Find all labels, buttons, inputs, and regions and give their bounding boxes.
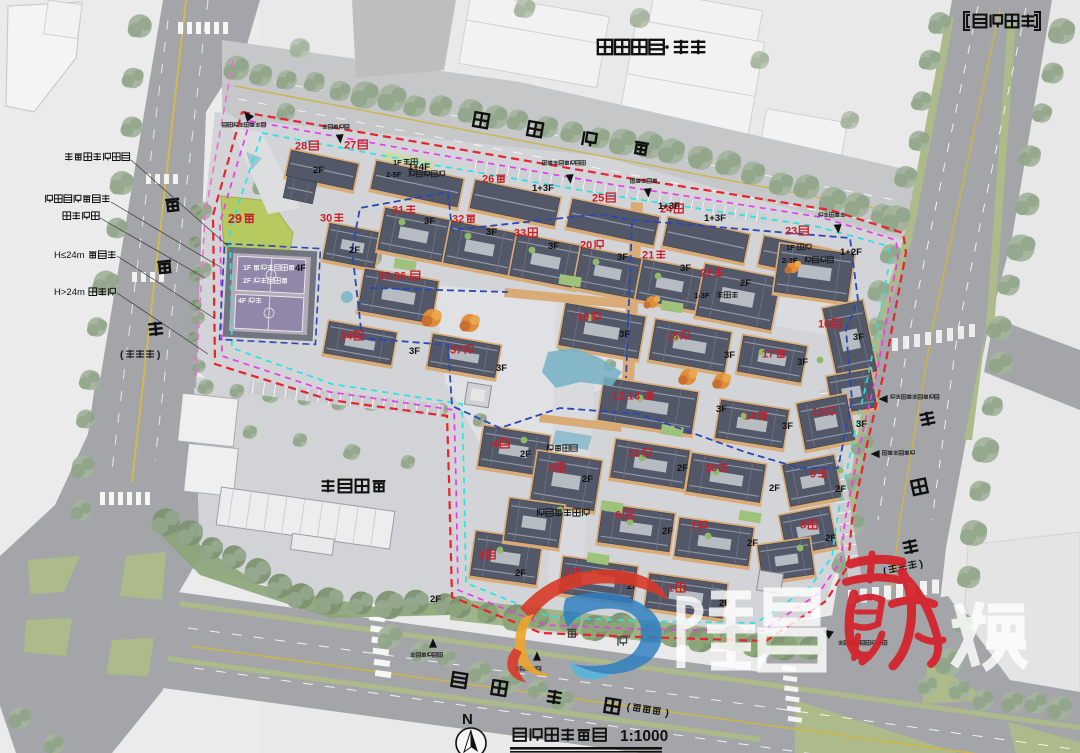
svg-text:1: 1 — [668, 582, 674, 594]
svg-text:14: 14 — [744, 410, 757, 422]
svg-text:29: 29 — [228, 212, 242, 226]
svg-text:23: 23 — [785, 225, 797, 237]
svg-text:26: 26 — [482, 173, 494, 185]
svg-text:2F: 2F — [430, 594, 441, 605]
svg-text:25: 25 — [592, 192, 604, 204]
svg-text:22: 22 — [700, 267, 712, 279]
svg-text:2F: 2F — [520, 449, 531, 460]
svg-text:H>24m: H>24m — [54, 287, 85, 298]
svg-text:10: 10 — [705, 462, 717, 474]
svg-text:3F: 3F — [424, 216, 435, 227]
svg-text:1F: 1F — [243, 265, 252, 272]
svg-text:11: 11 — [628, 447, 640, 459]
svg-text:2F: 2F — [677, 463, 688, 474]
svg-text:1F: 1F — [786, 243, 795, 252]
svg-text:31: 31 — [392, 204, 404, 216]
svg-text:2F: 2F — [825, 533, 836, 544]
svg-text:37: 37 — [450, 344, 462, 356]
svg-text:2-3F: 2-3F — [782, 256, 798, 265]
svg-text:3F: 3F — [496, 363, 507, 374]
svg-text:1+3F: 1+3F — [658, 201, 680, 212]
svg-text:6: 6 — [615, 509, 621, 521]
svg-text:5: 5 — [548, 462, 554, 474]
svg-text:1+3F: 1+3F — [532, 183, 554, 194]
svg-text:2F: 2F — [582, 474, 593, 485]
svg-text:33: 33 — [514, 227, 526, 239]
svg-text:3F: 3F — [782, 421, 793, 432]
svg-text:27: 27 — [344, 139, 356, 151]
svg-text:19: 19 — [577, 311, 589, 323]
svg-text:1-3F: 1-3F — [694, 291, 710, 300]
svg-text:N: N — [462, 711, 473, 728]
svg-text:2F: 2F — [243, 278, 252, 285]
svg-text:12-13: 12-13 — [612, 390, 640, 402]
svg-text:2F: 2F — [740, 278, 751, 289]
svg-text:3F: 3F — [486, 227, 497, 238]
svg-text:32: 32 — [452, 213, 464, 225]
svg-text:3F: 3F — [797, 357, 808, 368]
svg-text:3F: 3F — [680, 263, 691, 274]
svg-text:17: 17 — [762, 348, 774, 360]
svg-text:18: 18 — [666, 330, 678, 342]
svg-text:9: 9 — [810, 468, 816, 480]
svg-text:16: 16 — [818, 318, 830, 330]
svg-text:2F: 2F — [835, 484, 846, 495]
svg-text:30: 30 — [320, 212, 332, 224]
svg-text:34: 34 — [340, 330, 353, 342]
svg-text:2-5F: 2-5F — [386, 170, 402, 179]
svg-text:3F: 3F — [853, 332, 864, 343]
svg-text:2F: 2F — [515, 568, 526, 579]
svg-text:1F: 1F — [393, 158, 402, 167]
svg-text:2F: 2F — [662, 526, 673, 537]
svg-text:H≤24m: H≤24m — [54, 250, 85, 261]
svg-text:28: 28 — [295, 140, 307, 152]
svg-text:4F: 4F — [295, 263, 306, 274]
svg-text:1+2F: 1+2F — [840, 247, 862, 258]
svg-text:3F: 3F — [619, 329, 630, 340]
svg-text:8: 8 — [800, 519, 806, 531]
svg-text:3F: 3F — [716, 404, 727, 415]
svg-text:3F: 3F — [856, 419, 867, 430]
svg-text:2F: 2F — [747, 538, 758, 549]
svg-text:3: 3 — [478, 549, 484, 561]
svg-text:4F: 4F — [238, 298, 247, 305]
svg-text:7: 7 — [690, 520, 696, 532]
svg-text:4: 4 — [492, 438, 499, 450]
svg-text:): ) — [157, 350, 160, 361]
svg-text:1+3F: 1+3F — [704, 213, 726, 224]
svg-text:3F: 3F — [409, 346, 420, 357]
svg-text:2F: 2F — [313, 165, 324, 176]
svg-text:3F: 3F — [724, 350, 735, 361]
svg-text:20: 20 — [580, 239, 592, 251]
svg-text:35-36: 35-36 — [378, 270, 406, 282]
svg-text:2F: 2F — [769, 483, 780, 494]
svg-text:3F: 3F — [617, 252, 628, 263]
svg-text:15: 15 — [812, 406, 824, 418]
svg-text:3F: 3F — [548, 241, 559, 252]
svg-text:1:1000: 1:1000 — [620, 728, 668, 745]
svg-text:21: 21 — [642, 249, 654, 261]
svg-text:2F: 2F — [349, 245, 360, 256]
